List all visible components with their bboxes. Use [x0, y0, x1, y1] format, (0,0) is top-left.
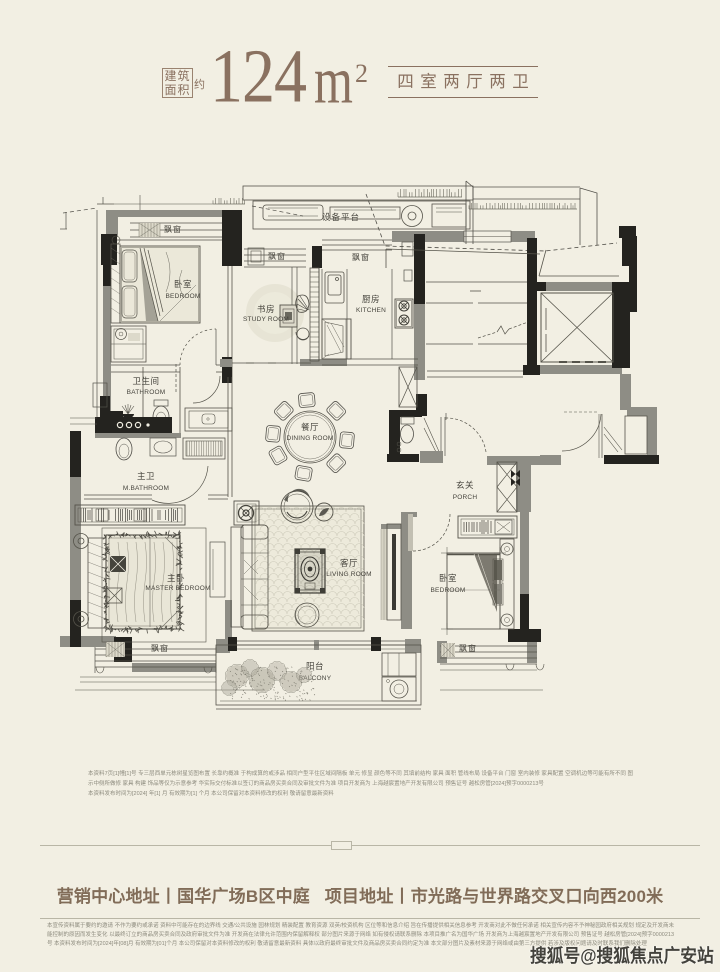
svg-text:厨房: 厨房 — [362, 294, 380, 304]
svg-text:DINING ROOM: DINING ROOM — [287, 435, 334, 442]
svg-text:BEDROOM: BEDROOM — [431, 587, 466, 594]
svg-text:阳台: 阳台 — [306, 661, 324, 671]
svg-text:BATHROOM: BATHROOM — [127, 389, 166, 396]
svg-text:飘窗: 飘窗 — [151, 643, 169, 653]
svg-text:餐厅: 餐厅 — [301, 422, 319, 432]
svg-text:飘窗: 飘窗 — [352, 252, 370, 262]
svg-text:KITCHEN: KITCHEN — [356, 307, 386, 314]
svg-text:飘窗: 飘窗 — [164, 224, 182, 234]
svg-text:设备平台: 设备平台 — [322, 212, 360, 222]
svg-text:卧室: 卧室 — [439, 573, 457, 583]
svg-text:飘窗: 飘窗 — [268, 251, 286, 261]
svg-text:卫生间: 卫生间 — [132, 376, 159, 386]
svg-text:主卫: 主卫 — [137, 471, 155, 481]
svg-text:M.BATHROOM: M.BATHROOM — [123, 485, 169, 492]
svg-text:LIVING ROOM: LIVING ROOM — [326, 571, 372, 578]
svg-text:BEDROOM: BEDROOM — [166, 293, 201, 300]
svg-text:卧室: 卧室 — [174, 279, 192, 289]
svg-text:STUDY ROOM: STUDY ROOM — [243, 316, 289, 323]
svg-text:客厅: 客厅 — [340, 558, 358, 568]
svg-text:主卧: 主卧 — [167, 573, 185, 583]
svg-text:飘窗: 飘窗 — [459, 643, 477, 653]
svg-text:书房: 书房 — [257, 304, 275, 314]
svg-text:玄关: 玄关 — [456, 480, 474, 490]
svg-text:MASTER BEDROOM: MASTER BEDROOM — [145, 585, 210, 592]
svg-text:PORCH: PORCH — [453, 494, 478, 501]
